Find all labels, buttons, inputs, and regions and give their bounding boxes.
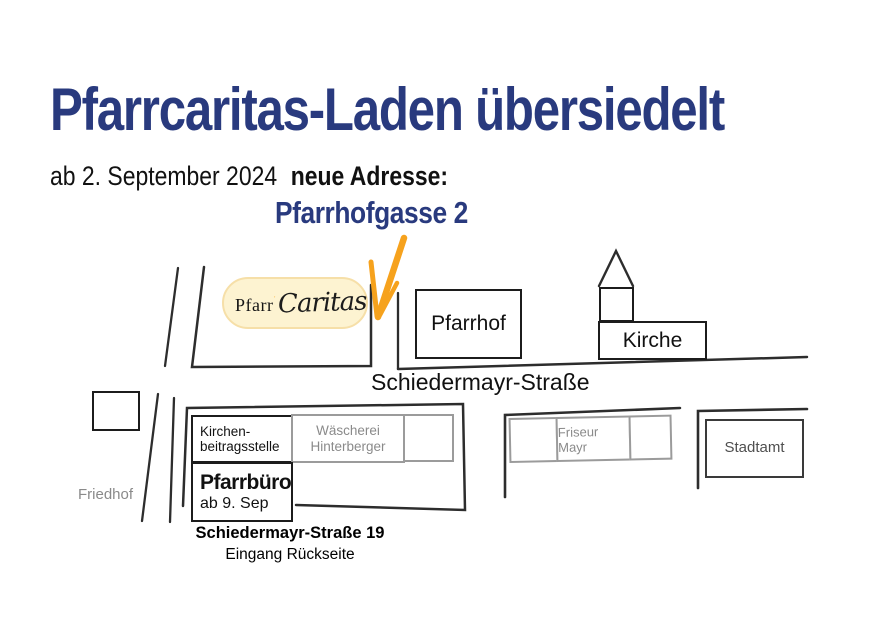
box-empty-right-of-friseur xyxy=(629,415,673,461)
road-line-lower-left-inner xyxy=(170,398,174,522)
box-empty-left-of-friseur xyxy=(509,417,559,463)
friseur-strip: Friseur Mayr xyxy=(509,415,673,463)
friedhof-building xyxy=(92,391,140,431)
street-label: Schiedermayr-Straße xyxy=(371,369,590,396)
building-pfarrhof: Pfarrhof xyxy=(415,289,522,359)
box-stadtamt: Stadtamt xyxy=(705,419,804,478)
box-empty-right xyxy=(403,414,454,462)
label-friedhof: Friedhof xyxy=(78,486,133,503)
label-kirchenbeitrag-line2: beitragsstelle xyxy=(200,439,280,454)
label-friseur: Friseur Mayr xyxy=(558,423,630,454)
label-pfarrbuero: Pfarrbüro xyxy=(200,471,291,495)
box-pfarrbuero: Pfarrbüro ab 9. Sep xyxy=(191,462,293,522)
box-waescherei: Wäscherei Hinterberger xyxy=(291,414,405,463)
box-friseur: Friseur Mayr xyxy=(556,415,632,462)
label-pfarrbuero-date: ab 9. Sep xyxy=(200,495,269,513)
date-text: ab 2. September 2024 xyxy=(50,162,277,192)
logo-name: Caritas xyxy=(277,286,366,319)
new-address: Pfarrhofgasse 2 xyxy=(275,196,468,230)
label-kirchenbeitrag-line1: Kirchen- xyxy=(200,424,250,439)
church-tower xyxy=(599,287,634,322)
caritas-logo: Pfarr Caritas xyxy=(222,277,368,329)
label-waescherei-line1: Wäscherei xyxy=(316,423,380,438)
church-spire-icon xyxy=(599,251,633,286)
flyer-page: Pfarrcaritas-Laden übersiedelt ab 2. Sep… xyxy=(0,0,886,626)
road-line-upper-left xyxy=(165,268,178,366)
cross-icon xyxy=(274,276,275,318)
label-kirche: Kirche xyxy=(623,329,683,353)
address-label: neue Adresse: xyxy=(291,162,448,192)
road-line-lower-left-outer xyxy=(142,394,158,521)
note-entrance: Eingang Rückseite xyxy=(190,546,390,564)
logo-prefix: Pfarr xyxy=(235,295,273,316)
label-pfarrhof: Pfarrhof xyxy=(431,312,506,336)
note-address: Schiedermayr-Straße 19 xyxy=(190,524,390,543)
page-title: Pfarrcaritas-Laden übersiedelt xyxy=(50,80,724,140)
building-kirche: Kirche xyxy=(598,321,707,360)
label-waescherei-line2: Hinterberger xyxy=(310,439,385,454)
subtitle-line: ab 2. September 2024 neue Adresse: xyxy=(50,162,448,192)
label-stadtamt: Stadtamt xyxy=(724,440,784,457)
box-kirchenbeitragsstelle: Kirchen- beitragsstelle xyxy=(191,415,293,463)
